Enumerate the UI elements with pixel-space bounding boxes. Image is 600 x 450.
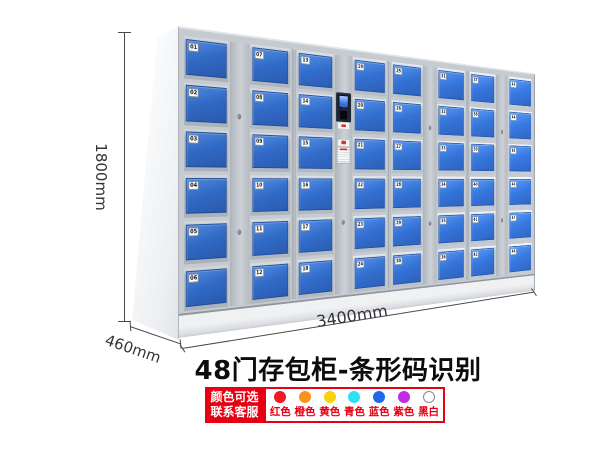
locker-door: 24 bbox=[355, 256, 385, 289]
locker-door: 03 bbox=[186, 131, 227, 168]
locker-door-cell: 21 bbox=[353, 137, 386, 174]
locker-door-cell: 23 bbox=[353, 215, 386, 253]
height-dimension-label: 1800mm bbox=[92, 143, 110, 210]
locker-door: 07 bbox=[252, 47, 288, 84]
locker-door-cell: 13 bbox=[297, 50, 334, 92]
door-number: 44 bbox=[511, 114, 517, 121]
door-number: 42 bbox=[473, 251, 479, 258]
locker-door-cell: 41 bbox=[470, 211, 496, 244]
door-number: 15 bbox=[301, 139, 310, 147]
locker-door-cell: 22 bbox=[353, 176, 386, 212]
locker-door-cell: 34 bbox=[437, 177, 465, 210]
instruction-card bbox=[337, 146, 351, 164]
locker-door-cell: 09 bbox=[250, 132, 290, 173]
door-number: 06 bbox=[188, 273, 199, 283]
door-column: 070809101112 bbox=[249, 42, 291, 306]
locker-door-cell: 04 bbox=[184, 176, 229, 219]
door-number: 04 bbox=[188, 181, 199, 190]
locker-door: 18 bbox=[299, 260, 332, 295]
locker-door: 22 bbox=[355, 179, 385, 210]
color-option-label: 青色 bbox=[344, 404, 365, 419]
color-option-label: 橙色 bbox=[295, 404, 316, 419]
color-swatch-icon bbox=[398, 391, 410, 403]
door-number: 35 bbox=[440, 217, 446, 224]
control-column bbox=[335, 55, 352, 295]
door-number: 13 bbox=[301, 55, 310, 64]
locker-door: 27 bbox=[393, 140, 421, 170]
locker-door-cell: 07 bbox=[250, 44, 290, 88]
locker-door: 46 bbox=[509, 179, 530, 205]
door-number: 17 bbox=[301, 223, 310, 231]
locker-door-cell: 25 bbox=[392, 62, 422, 100]
locker-door: 08 bbox=[252, 91, 288, 127]
locker-door-cell: 12 bbox=[250, 261, 290, 304]
locker-door: 13 bbox=[299, 52, 332, 88]
locker-door-cell: 39 bbox=[470, 142, 496, 174]
door-column: 252627282930 bbox=[391, 60, 423, 290]
locker-door: 17 bbox=[299, 219, 332, 253]
keyhole-lock-icon bbox=[428, 221, 431, 226]
lock-strip bbox=[230, 41, 250, 306]
door-number: 27 bbox=[395, 143, 402, 151]
keyhole-lock-icon bbox=[501, 130, 503, 134]
door-number: 10 bbox=[254, 181, 263, 189]
locker-door: 09 bbox=[252, 134, 288, 168]
lock-strip bbox=[496, 75, 507, 277]
locker-door-cell: 29 bbox=[392, 214, 422, 250]
door-number: 25 bbox=[395, 67, 402, 75]
door-column: 131415161718 bbox=[296, 48, 335, 301]
door-number: 02 bbox=[188, 88, 199, 98]
door-number: 23 bbox=[357, 221, 365, 229]
color-swatch-icon bbox=[423, 391, 435, 403]
door-number: 41 bbox=[473, 216, 479, 223]
locker-door: 21 bbox=[355, 139, 385, 170]
locker-door: 41 bbox=[471, 213, 494, 241]
height-dimension-line bbox=[124, 32, 125, 322]
locker-door-cell: 10 bbox=[250, 176, 290, 216]
locker-door: 28 bbox=[393, 179, 421, 209]
barcode-scanner-icon bbox=[340, 110, 347, 119]
locker-door: 31 bbox=[439, 70, 464, 101]
locker-door-cell: 01 bbox=[184, 36, 229, 83]
depth-dimension-label: 460mm bbox=[103, 331, 164, 367]
door-number: 11 bbox=[254, 224, 263, 233]
locker-door-cell: 45 bbox=[508, 144, 532, 175]
door-number: 14 bbox=[301, 97, 310, 106]
locker-door: 47 bbox=[509, 212, 530, 239]
color-swatch-icon bbox=[348, 391, 360, 403]
door-number: 39 bbox=[473, 146, 479, 153]
locker-door-cell: 03 bbox=[184, 129, 229, 172]
locker-door: 42 bbox=[471, 247, 494, 276]
locker-door: 44 bbox=[509, 112, 530, 139]
door-number: 45 bbox=[511, 148, 517, 155]
locker-door: 06 bbox=[186, 268, 227, 307]
locker-door-cell: 11 bbox=[250, 218, 290, 260]
locker-door: 32 bbox=[439, 106, 464, 136]
door-number: 12 bbox=[254, 268, 263, 277]
product-title: 48门存包柜-条形码识别 bbox=[195, 350, 482, 387]
locker-door: 25 bbox=[393, 64, 421, 96]
locker-door: 12 bbox=[252, 263, 288, 300]
locker-door-cell: 16 bbox=[297, 176, 334, 214]
locker-door: 29 bbox=[393, 216, 421, 247]
color-swatch-icon bbox=[299, 391, 311, 403]
locker-door: 40 bbox=[471, 179, 494, 206]
locker-door-cell: 24 bbox=[353, 254, 386, 293]
color-option: 橙色 bbox=[295, 391, 316, 419]
locker-door-cell: 26 bbox=[392, 100, 422, 137]
door-number: 16 bbox=[301, 181, 310, 189]
door-column: 434445464748 bbox=[508, 75, 533, 277]
decal-sticker bbox=[337, 122, 349, 130]
door-number: 34 bbox=[440, 181, 446, 188]
locker-door-cell: 06 bbox=[184, 265, 229, 311]
door-number: 07 bbox=[254, 50, 263, 59]
door-number: 01 bbox=[188, 42, 199, 52]
locker-door-cell: 02 bbox=[184, 82, 229, 127]
door-column: 373839404142 bbox=[469, 70, 496, 281]
keyhole-lock-icon bbox=[428, 125, 431, 130]
door-number: 47 bbox=[511, 215, 517, 222]
door-number: 30 bbox=[395, 257, 402, 265]
locker-door-cell: 08 bbox=[250, 88, 290, 130]
locker-door: 10 bbox=[252, 178, 288, 212]
locker-door: 35 bbox=[439, 214, 464, 243]
cabinet-front-wrap: 0102030405060708091011121314151617181920… bbox=[178, 26, 600, 338]
color-option: 紫色 bbox=[393, 391, 414, 419]
door-column: 010203040506 bbox=[182, 34, 229, 314]
locker-door-cell: 32 bbox=[437, 104, 465, 139]
color-option: 黑白 bbox=[418, 391, 439, 419]
locker-door-cell: 19 bbox=[353, 57, 386, 96]
locker-door-cell: 20 bbox=[353, 97, 386, 135]
locker-door-cell: 30 bbox=[392, 251, 422, 288]
locker-door: 14 bbox=[299, 94, 332, 128]
cabinet-side-panel bbox=[129, 22, 181, 344]
locker-door-cell: 42 bbox=[470, 246, 496, 280]
locker-door-cell: 38 bbox=[470, 107, 496, 140]
locker-door-cell: 33 bbox=[437, 140, 465, 174]
locker-door: 48 bbox=[509, 245, 530, 273]
color-option-label: 紫色 bbox=[393, 404, 414, 419]
door-number: 43 bbox=[511, 81, 517, 88]
color-option: 红色 bbox=[270, 391, 291, 419]
door-number: 38 bbox=[473, 111, 479, 118]
locker-door: 04 bbox=[186, 178, 227, 214]
door-number: 40 bbox=[473, 181, 479, 188]
locker-door-cell: 14 bbox=[297, 92, 334, 132]
door-number: 08 bbox=[254, 94, 263, 103]
locker-door: 38 bbox=[471, 109, 494, 137]
locker-door-cell: 27 bbox=[392, 138, 422, 173]
locker-door-cell: 28 bbox=[392, 177, 422, 212]
door-number: 32 bbox=[440, 108, 446, 115]
door-number: 36 bbox=[440, 253, 446, 260]
locker-door-cell: 35 bbox=[437, 212, 465, 246]
door-number: 29 bbox=[395, 219, 402, 227]
product-image: 1800mm 010203040506070809101112131415161… bbox=[0, 0, 600, 450]
locker-door-cell: 40 bbox=[470, 177, 496, 209]
door-number: 09 bbox=[254, 137, 263, 146]
locker-door-cell: 36 bbox=[437, 248, 465, 283]
locker-door-cell: 46 bbox=[508, 177, 532, 208]
door-number: 19 bbox=[357, 62, 365, 71]
color-option: 蓝色 bbox=[369, 391, 390, 419]
color-swatch-icon bbox=[373, 391, 385, 403]
keyhole-lock-icon bbox=[237, 229, 241, 235]
door-number: 24 bbox=[357, 260, 365, 268]
locker-door-cell: 17 bbox=[297, 217, 334, 257]
door-number: 22 bbox=[357, 181, 365, 189]
legend-badge-line1: 颜色可选 bbox=[210, 390, 258, 405]
locker-door: 43 bbox=[509, 78, 530, 106]
locker-door: 34 bbox=[439, 179, 464, 207]
locker-door: 16 bbox=[299, 178, 332, 211]
locker-door: 26 bbox=[393, 102, 421, 133]
color-option-label: 黑白 bbox=[418, 404, 439, 419]
color-option-label: 黄色 bbox=[319, 404, 340, 419]
door-column: 313233343536 bbox=[436, 66, 465, 285]
keyhole-lock-icon bbox=[237, 113, 241, 119]
locker-door-cell: 37 bbox=[470, 72, 496, 106]
color-option-label: 蓝色 bbox=[369, 404, 390, 419]
color-legend: 颜色可选 联系客服 红色橙色黄色青色蓝色紫色黑白 bbox=[205, 387, 445, 423]
door-number: 18 bbox=[301, 264, 310, 273]
locker-door: 11 bbox=[252, 221, 288, 256]
locker-door-cell: 47 bbox=[508, 210, 532, 242]
locker-door: 05 bbox=[186, 223, 227, 261]
door-number: 31 bbox=[440, 72, 446, 80]
color-swatch-icon bbox=[324, 391, 336, 403]
door-number: 33 bbox=[440, 145, 446, 152]
door-number: 37 bbox=[473, 76, 479, 83]
door-number: 03 bbox=[188, 135, 199, 144]
door-number: 05 bbox=[188, 227, 199, 236]
locker-door: 19 bbox=[355, 59, 385, 93]
door-number: 46 bbox=[511, 181, 517, 187]
control-panel bbox=[336, 92, 351, 122]
color-swatch-icon bbox=[274, 391, 286, 403]
color-option: 青色 bbox=[344, 391, 365, 419]
keyhole-lock-icon bbox=[342, 220, 345, 225]
door-number: 26 bbox=[395, 105, 402, 113]
locker-door-cell: 31 bbox=[437, 67, 465, 103]
locker-door-cell: 48 bbox=[508, 243, 532, 276]
locker-door: 45 bbox=[509, 146, 530, 172]
legend-badge-line2: 联系客服 bbox=[210, 405, 258, 420]
door-number: 28 bbox=[395, 181, 402, 188]
door-number: 21 bbox=[357, 141, 365, 149]
locker-door-cell: 43 bbox=[508, 76, 532, 109]
cabinet-front: 0102030405060708091011121314151617181920… bbox=[178, 26, 535, 338]
locker-door: 30 bbox=[393, 253, 421, 285]
locker-door: 15 bbox=[299, 136, 332, 169]
door-column: 192021222324 bbox=[352, 55, 387, 294]
color-option-label: 红色 bbox=[270, 404, 291, 419]
locker-door: 20 bbox=[355, 99, 385, 131]
legend-badge: 颜色可选 联系客服 bbox=[205, 387, 264, 423]
locker-door: 33 bbox=[439, 142, 464, 171]
door-number: 48 bbox=[511, 248, 517, 255]
legend-options-box: 红色橙色黄色青色蓝色紫色黑白 bbox=[264, 387, 445, 423]
color-option: 黄色 bbox=[319, 391, 340, 419]
locker-door-cell: 15 bbox=[297, 134, 334, 173]
lock-strip bbox=[423, 66, 436, 285]
locker-door-cell: 05 bbox=[184, 221, 229, 265]
locker-door: 23 bbox=[355, 217, 385, 249]
keyhole-lock-icon bbox=[501, 218, 503, 222]
locker-door-cell: 18 bbox=[297, 258, 334, 299]
locker-door: 36 bbox=[439, 250, 464, 280]
locker-door: 37 bbox=[471, 74, 494, 103]
locker-door-cell: 44 bbox=[508, 110, 532, 142]
locker-door: 01 bbox=[186, 38, 227, 78]
locker-door: 02 bbox=[186, 85, 227, 123]
locker-door: 39 bbox=[471, 144, 494, 172]
door-number: 20 bbox=[357, 102, 365, 110]
